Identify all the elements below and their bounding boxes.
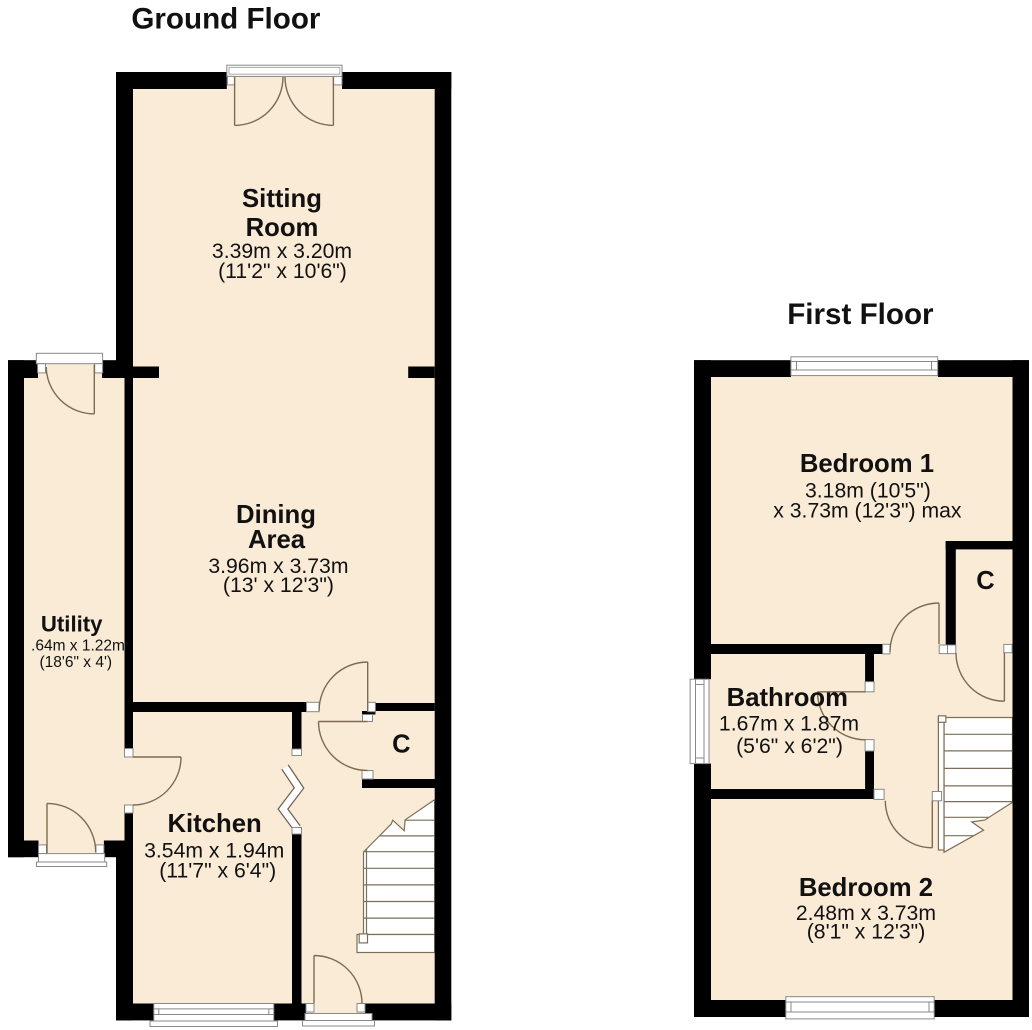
svg-text:(11'7" x 6'4"): (11'7" x 6'4") [159,859,276,882]
svg-text:1.67m x 1.87m: 1.67m x 1.87m [719,713,859,736]
svg-text:(8'1" x 12'3"): (8'1" x 12'3") [807,921,926,944]
svg-text:.64m x 1.22m: .64m x 1.22m [31,637,125,654]
svg-text:x 3.73m (12'3") max: x 3.73m (12'3") max [773,500,962,523]
svg-text:First Floor: First Floor [787,298,934,331]
svg-text:Utility: Utility [41,612,103,637]
svg-text:Area: Area [248,526,306,554]
svg-text:Bedroom 2: Bedroom 2 [799,874,933,902]
svg-text:C: C [392,731,410,759]
svg-text:Kitchen: Kitchen [167,810,261,838]
svg-text:Bathroom: Bathroom [727,684,848,712]
svg-text:Bedroom 1: Bedroom 1 [800,450,934,478]
svg-text:Room: Room [246,214,319,242]
svg-text:(11'2" x 10'6"): (11'2" x 10'6") [218,260,347,283]
svg-text:C: C [976,567,994,595]
svg-text:Dining: Dining [236,501,316,529]
svg-text:Ground Floor: Ground Floor [131,3,321,36]
svg-text:(13' x 12'3"): (13' x 12'3") [223,574,334,597]
svg-text:(5'6" x 6'2"): (5'6" x 6'2") [736,735,843,758]
svg-text:(18'6" x 4'): (18'6" x 4') [40,654,113,671]
svg-text:Sitting: Sitting [242,185,322,213]
